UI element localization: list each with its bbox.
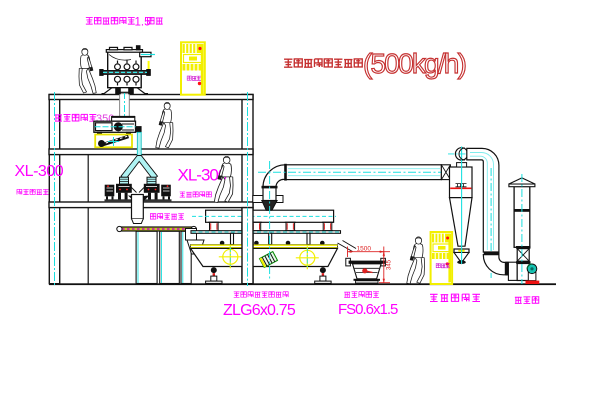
svg-text:345: 345	[387, 259, 393, 270]
svg-text:FS0.6x1.5: FS0.6x1.5	[338, 301, 398, 318]
svg-text:1500: 1500	[357, 246, 372, 253]
svg-text:1.5: 1.5	[135, 17, 151, 29]
svg-text:ZLG6x0.75: ZLG6x0.75	[223, 302, 296, 319]
svg-text:XL-300: XL-300	[15, 163, 64, 180]
svg-text:(500kg/h): (500kg/h)	[363, 48, 466, 79]
